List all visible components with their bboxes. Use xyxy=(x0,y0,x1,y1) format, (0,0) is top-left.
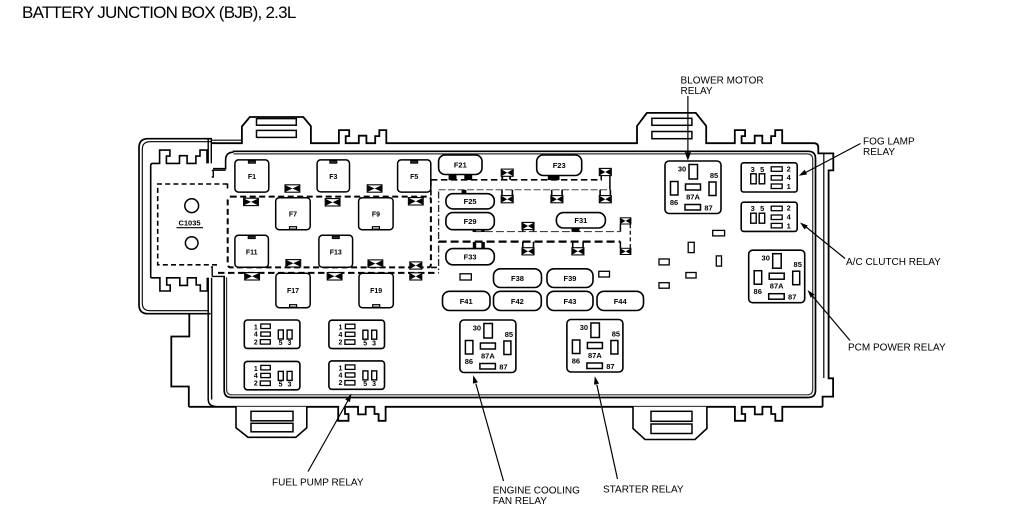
svg-text:BLOWER MOTOR: BLOWER MOTOR xyxy=(681,76,764,87)
svg-text:ENGINE COOLING: ENGINE COOLING xyxy=(493,486,580,497)
svg-text:F17: F17 xyxy=(287,288,299,295)
svg-text:F5: F5 xyxy=(410,174,418,181)
svg-text:FOG LAMP: FOG LAMP xyxy=(863,137,915,148)
svg-text:F21: F21 xyxy=(454,161,467,170)
svg-text:F43: F43 xyxy=(564,297,577,306)
svg-text:FAN RELAY: FAN RELAY xyxy=(493,496,548,507)
svg-text:FUEL PUMP RELAY: FUEL PUMP RELAY xyxy=(272,478,364,489)
svg-text:F38: F38 xyxy=(511,274,524,283)
svg-text:F33: F33 xyxy=(464,253,477,262)
svg-text:F41: F41 xyxy=(460,297,473,306)
svg-text:BATTERY JUNCTION BOX (BJB), 2.: BATTERY JUNCTION BOX (BJB), 2.3L xyxy=(22,3,296,22)
svg-text:F42: F42 xyxy=(511,297,524,306)
svg-text:F19: F19 xyxy=(370,288,382,295)
svg-text:PCM POWER RELAY: PCM POWER RELAY xyxy=(848,343,946,354)
svg-text:F1: F1 xyxy=(248,174,256,181)
svg-text:RELAY: RELAY xyxy=(863,147,895,158)
svg-text:F9: F9 xyxy=(372,212,380,219)
svg-text:RELAY: RELAY xyxy=(681,86,713,97)
svg-text:C1035: C1035 xyxy=(178,219,200,228)
svg-text:F23: F23 xyxy=(553,161,566,170)
svg-text:F11: F11 xyxy=(246,250,258,257)
svg-text:STARTER RELAY: STARTER RELAY xyxy=(603,485,684,496)
svg-text:F39: F39 xyxy=(564,274,577,283)
svg-text:F3: F3 xyxy=(329,174,337,181)
svg-text:F29: F29 xyxy=(464,217,477,226)
svg-text:F25: F25 xyxy=(464,197,477,206)
svg-text:F7: F7 xyxy=(289,212,297,219)
svg-text:F13: F13 xyxy=(330,250,342,257)
svg-text:F31: F31 xyxy=(574,216,587,225)
svg-text:A/C CLUTCH RELAY: A/C CLUTCH RELAY xyxy=(846,257,941,268)
svg-text:F44: F44 xyxy=(614,297,628,306)
